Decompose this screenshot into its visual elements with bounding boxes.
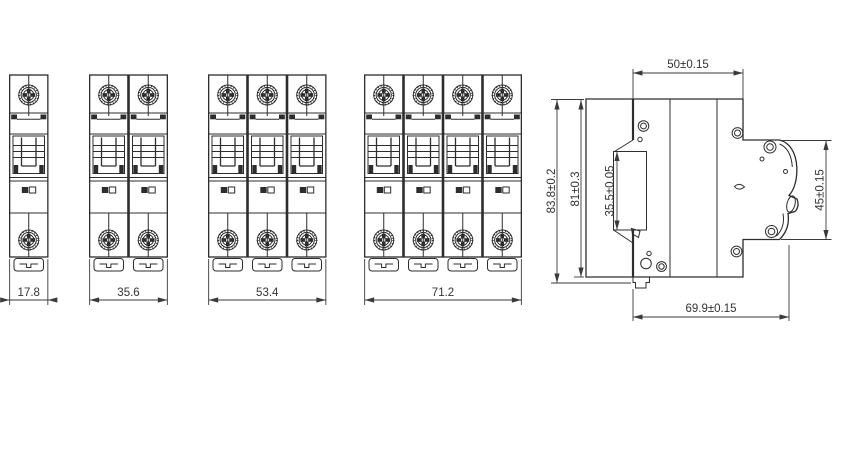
dimension-overall-depth: 69.9±0.15 bbox=[633, 245, 789, 321]
din-rail-slot bbox=[614, 152, 647, 231]
rivet-icon bbox=[731, 246, 742, 257]
mount-hole bbox=[641, 258, 652, 269]
dimension-width-2pole: 35.6 bbox=[90, 259, 168, 305]
dimension-label-3pole-width: 53.4 bbox=[256, 287, 279, 299]
side-view-details bbox=[638, 121, 788, 272]
dimension-width-4pole: 71.2 bbox=[365, 259, 522, 305]
din-latch-tab bbox=[633, 277, 650, 288]
front-view-3pole: 53.4 bbox=[209, 75, 326, 305]
toggle-lever bbox=[785, 195, 797, 213]
dimension-label-4pole-width: 71.2 bbox=[432, 287, 454, 299]
dimension-top-width: 50±0.15 bbox=[633, 59, 743, 99]
din-rail-mount bbox=[614, 99, 650, 288]
dimension-label-din-slot-height: 35.5±0.05 bbox=[605, 165, 617, 216]
dimension-overall-height: 83.8±0.2 bbox=[546, 100, 631, 284]
terminal-screw-icon bbox=[766, 226, 778, 238]
dimension-label-front-height: 45±0.15 bbox=[815, 169, 827, 211]
technical-drawing-page: 17.8 35.6 53.4 71.2 bbox=[0, 0, 842, 451]
dimension-front-height: 45±0.15 bbox=[781, 141, 832, 240]
pin-hole bbox=[760, 157, 764, 161]
side-view-outline bbox=[586, 99, 798, 277]
dimension-width-1pole: 17.8 bbox=[3, 259, 55, 305]
dimension-label-2pole-width: 35.6 bbox=[117, 287, 139, 299]
dimension-din-slot-height: 35.5±0.05 bbox=[605, 152, 618, 231]
dimension-label-top-width: 50±0.15 bbox=[667, 59, 709, 71]
body-seam-lines bbox=[670, 99, 717, 277]
mcb-dimension-drawing: 17.8 35.6 53.4 71.2 bbox=[0, 0, 842, 451]
rivet-icon bbox=[638, 121, 649, 132]
front-view-1pole: 17.8 bbox=[3, 75, 55, 305]
dimension-label-overall-height: 83.8±0.2 bbox=[546, 169, 558, 214]
rivet-icon bbox=[657, 262, 667, 272]
dimension-label-body-height: 81±0.3 bbox=[570, 171, 582, 206]
molded-mark bbox=[735, 184, 745, 189]
rivet-icon bbox=[732, 128, 743, 139]
side-view: 50±0.15 83.8±0.2 81±0.3 35.5±0.05 45±0.1… bbox=[546, 59, 832, 321]
pin-hole bbox=[638, 137, 642, 141]
dimension-label-overall-depth: 69.9±0.15 bbox=[685, 303, 736, 315]
pin-hole bbox=[647, 251, 651, 255]
front-view-4pole: 71.2 bbox=[365, 75, 522, 305]
terminal-screw-icon bbox=[764, 141, 776, 153]
dimension-body-height: 81±0.3 bbox=[570, 100, 584, 277]
dimension-label-1pole-width: 17.8 bbox=[18, 287, 40, 299]
front-view-2pole: 35.6 bbox=[90, 75, 168, 305]
pin-hole bbox=[784, 170, 788, 174]
dimension-width-3pole: 53.4 bbox=[209, 259, 326, 305]
